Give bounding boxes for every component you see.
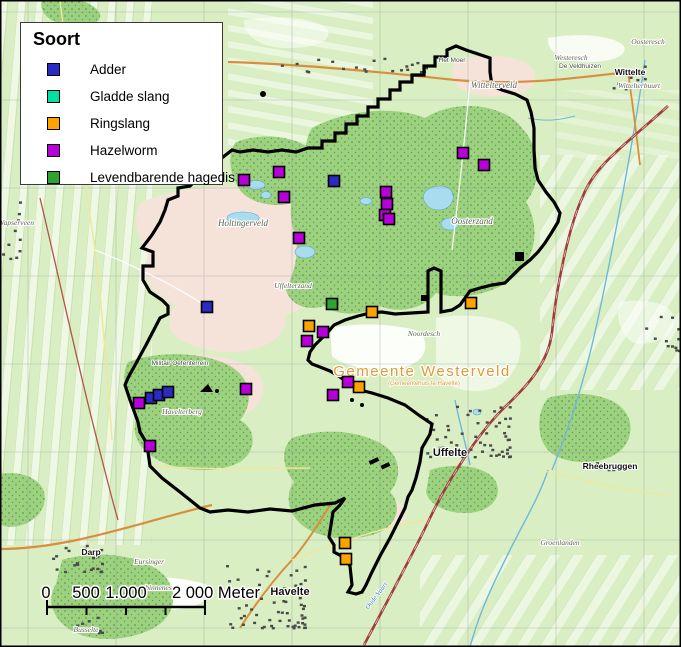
observation-marker-hazelworm: [274, 167, 285, 178]
map-label: Rheebruggen: [583, 461, 638, 471]
scale-bar-label: 0: [41, 584, 50, 602]
observation-marker-ringslang: [340, 538, 351, 549]
map-label: Westeresch: [554, 53, 587, 62]
map-label: (Gemeentehuis te Havelte): [388, 381, 460, 387]
legend-item-label: Adder: [90, 62, 126, 77]
observation-marker-adder: [202, 302, 213, 313]
map-label: Wittelte: [615, 67, 646, 77]
map-label: Wittelterveld: [471, 80, 517, 90]
observation-marker-adder: [329, 176, 340, 187]
map-label: De Veldhuizen: [559, 63, 601, 70]
legend-item-label: Levendbarende hagedis: [90, 170, 235, 185]
observation-marker-hazelworm: [239, 175, 250, 186]
observation-marker-hazelworm: [134, 398, 145, 409]
legend-item-label: Ringslang: [90, 116, 150, 131]
map-page: HoltingerveldOosterzandWittelterveldWest…: [0, 0, 681, 647]
map-label: Darp: [81, 547, 100, 557]
legend-item-gladde-slang: Gladde slang: [47, 83, 222, 110]
map-label: Militair Oefenterrein: [152, 360, 209, 367]
map-label: Busselte: [74, 625, 100, 634]
legend-item-label: Gladde slang: [90, 89, 170, 104]
map-label: Wapserveen: [0, 218, 34, 227]
scale-bar-label: 1.000: [105, 584, 146, 602]
map-label: Uffelte: [433, 447, 467, 459]
map-label: Het Moer: [439, 57, 467, 64]
map-label: Eursinger: [133, 557, 164, 566]
legend-title: Soort: [33, 29, 222, 50]
observation-marker-hazelworm: [458, 148, 469, 159]
map-label: Uffelterzand: [274, 281, 312, 290]
observation-marker-hazelworm: [318, 327, 329, 338]
observation-marker-hazelworm: [382, 199, 393, 210]
observation-marker-hazelworm: [328, 390, 339, 401]
map-label: Havelterberg: [161, 407, 202, 416]
observation-marker-hazelworm: [302, 336, 313, 347]
legend-item-levendbarende-hagedis: Levendbarende hagedis: [47, 164, 222, 191]
legend-swatch-gladde-slang: [47, 90, 60, 103]
map-label: Noordesch: [407, 329, 440, 338]
observation-marker-hazelworm: [381, 187, 392, 198]
map-label: Holtingerveld: [217, 218, 268, 228]
scale-bar-label: 500: [72, 584, 100, 602]
legend-item-adder: Adder: [47, 56, 222, 83]
legend-panel: Soort AdderGladde slangRingslangHazelwor…: [20, 22, 223, 185]
legend-swatch-adder: [47, 63, 60, 76]
observation-marker-ringslang: [304, 321, 315, 332]
map-label: Havelte: [270, 586, 309, 598]
map-label: Oosteresch: [631, 37, 665, 46]
map-label: Groenlanden: [540, 538, 580, 547]
observation-marker-hazelworm: [384, 214, 395, 225]
legend-swatch-hazelworm: [47, 144, 60, 157]
observation-marker-hazelworm: [343, 377, 354, 388]
observation-marker-ringslang: [466, 298, 477, 309]
legend-item-hazelworm: Hazelworm: [47, 137, 222, 164]
observation-marker-ringslang: [367, 307, 378, 318]
legend-swatch-levendbarende-hagedis: [47, 171, 60, 184]
legend-swatch-ringslang: [47, 117, 60, 130]
observation-marker-hazelworm: [279, 192, 290, 203]
observation-marker-hazelworm: [479, 160, 490, 171]
legend-item-label: Hazelworm: [90, 143, 158, 158]
observation-marker-adder: [163, 387, 174, 398]
observation-marker-hazelworm: [294, 233, 305, 244]
map-label: Wittelterbuurt: [618, 81, 661, 90]
observation-marker-hazelworm: [241, 384, 252, 395]
observation-marker-ringslang: [341, 554, 352, 565]
observation-marker-ringslang: [354, 382, 365, 393]
map-label: Oosterzand: [451, 216, 493, 226]
legend-item-ringslang: Ringslang: [47, 110, 222, 137]
scale-bar-label: 2 000 Meter: [172, 584, 261, 602]
observation-marker-hazelworm: [145, 441, 156, 452]
map-label: Gemeente Westerveld: [333, 363, 510, 380]
observation-marker-levendbarende-hagedis: [327, 299, 338, 310]
